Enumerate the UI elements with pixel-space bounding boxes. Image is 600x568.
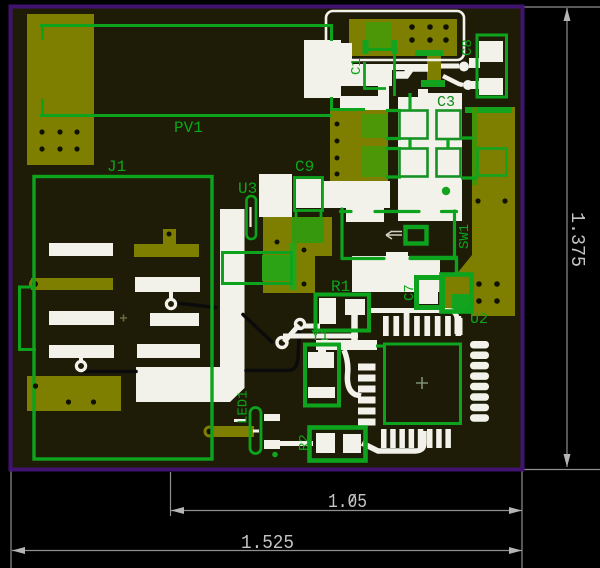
svg-text:C8: C8 [460,39,476,56]
svg-text:C9: C9 [295,158,314,176]
svg-text:U3: U3 [238,180,257,198]
svg-text:J1: J1 [107,158,126,176]
svg-text:R1: R1 [331,278,350,296]
svg-text:LED1: LED1 [236,390,252,424]
svg-text:U2: U2 [470,311,488,328]
svg-text:Y1: Y1 [311,328,329,345]
svg-text:R2: R2 [297,434,313,451]
svg-text:PV1: PV1 [174,119,203,137]
svg-text:C3: C3 [437,94,455,111]
svg-text:1.05: 1.05 [328,491,367,513]
svg-text:C7: C7 [402,284,418,301]
svg-text:1.525: 1.525 [241,532,294,554]
svg-text:SW1: SW1 [457,224,473,249]
svg-text:C1: C1 [349,58,365,75]
svg-text:1.375: 1.375 [566,212,588,267]
